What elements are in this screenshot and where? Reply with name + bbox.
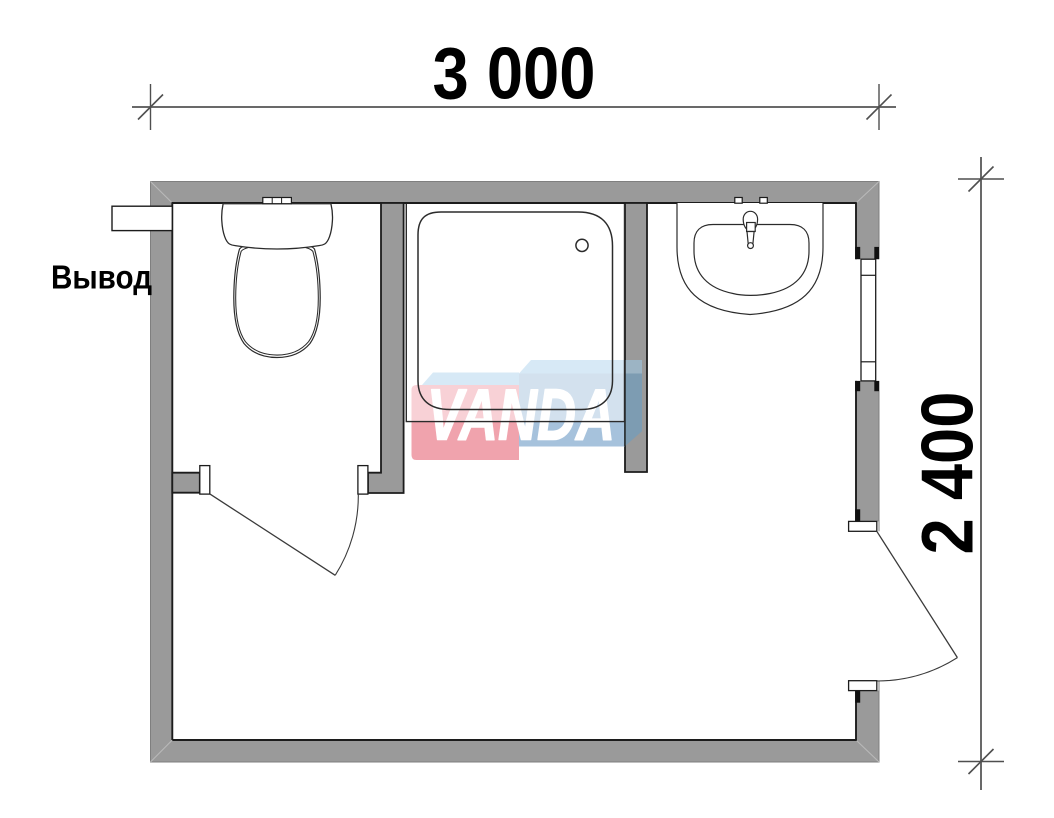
svg-text:3 000: 3 000: [433, 34, 596, 115]
svg-text:2 400: 2 400: [908, 392, 989, 555]
svg-text:Вывод: Вывод: [51, 259, 152, 296]
